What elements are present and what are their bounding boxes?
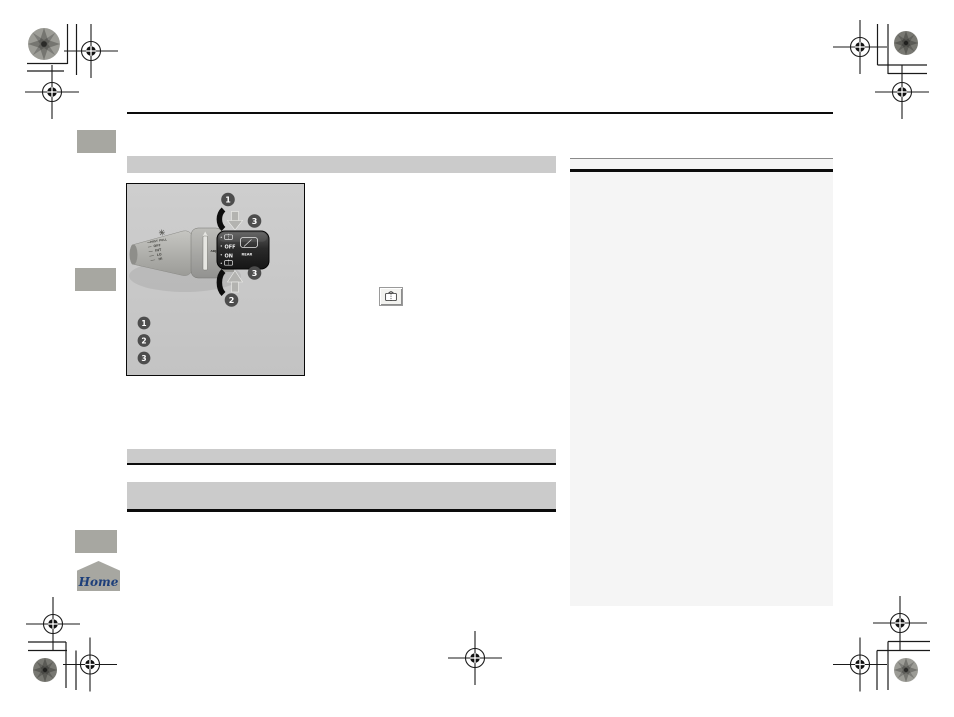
home-button-label: Home bbox=[79, 574, 119, 591]
adjust-slider-bar bbox=[203, 236, 207, 270]
chapter-edge-tab-middle bbox=[75, 268, 116, 291]
callout-2-number: 2 bbox=[229, 296, 235, 305]
windshield-washer-icon bbox=[158, 229, 165, 236]
push-down-arrow bbox=[228, 212, 243, 231]
wiper-control-diagram: MISTPULL OFF INT LO HI ADJ bbox=[126, 183, 305, 376]
next-section-title-bar bbox=[127, 482, 556, 512]
chapter-edge-tab-bottom bbox=[75, 530, 117, 553]
callout-3-number-top: 3 bbox=[252, 217, 258, 226]
knob-on-label: ON bbox=[225, 253, 233, 259]
home-button[interactable]: Home bbox=[77, 561, 120, 591]
stalk-tip bbox=[130, 245, 138, 265]
rear-window-washer-icon bbox=[379, 287, 403, 306]
legend-2-number: 2 bbox=[141, 336, 146, 345]
legend-1-number: 1 bbox=[141, 319, 146, 328]
notes-sidebar-rule bbox=[570, 169, 833, 172]
callout-3-number-bottom: 3 bbox=[252, 269, 258, 278]
legend-3-number: 3 bbox=[141, 354, 146, 363]
svg-text:HI: HI bbox=[158, 257, 163, 262]
subsection-heading-bar bbox=[127, 449, 556, 465]
notes-sidebar bbox=[570, 158, 833, 606]
chapter-edge-tab-top bbox=[77, 130, 116, 153]
manual-page: MISTPULL OFF INT LO HI ADJ bbox=[0, 0, 954, 717]
knob-rear-label: REAR bbox=[242, 253, 253, 257]
knob-off-label: OFF bbox=[225, 244, 236, 250]
section-title-bar bbox=[127, 156, 556, 173]
adj-label: ADJ bbox=[211, 249, 217, 253]
header-rule bbox=[127, 112, 833, 114]
rotate-up-arrow bbox=[219, 210, 223, 230]
callout-1-number: 1 bbox=[225, 195, 231, 204]
